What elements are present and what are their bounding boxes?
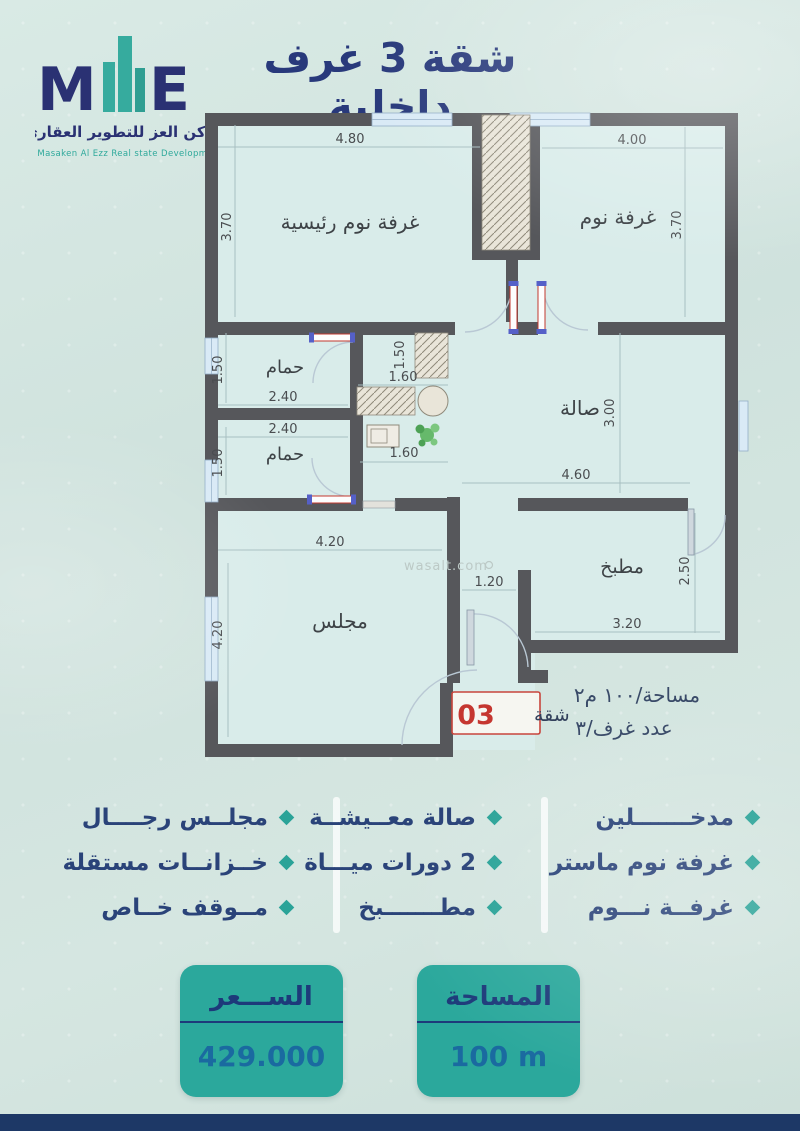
dim-majlis-width: 4.20 <box>316 535 345 550</box>
price-card-value: 429.000 <box>180 1040 343 1073</box>
feature-label: غرفة نوم ماستر <box>550 850 734 876</box>
dim-bath2-width: 2.40 <box>269 422 298 437</box>
diamond-bullet-icon <box>745 855 761 871</box>
diamond-bullet-icon <box>279 810 295 826</box>
floor-plan: 4.80 3.70 4.00 3.70 2.40 1.50 2.40 1.50 … <box>190 105 755 770</box>
features-column-entrances: مدخـــــــلين غرفة نوم ماستر غرفــة نـــ… <box>518 795 758 930</box>
majlis-open-door-leaf <box>363 501 395 508</box>
dim-bedroom-width: 4.00 <box>618 133 647 148</box>
feature-label: مدخـــــــلين <box>595 805 734 831</box>
dim-hall-width: 4.60 <box>562 468 591 483</box>
dim-bedroom-height: 3.70 <box>670 211 685 240</box>
feature-item: مطـــــــبخ <box>300 885 500 930</box>
washer-icon <box>367 425 399 447</box>
room-label-bedroom: غرفة نوم <box>580 205 656 229</box>
logo-monogram-e: E <box>149 55 190 125</box>
diamond-bullet-icon <box>487 900 503 916</box>
logo-monogram-m: M <box>37 55 97 125</box>
diamond-bullet-icon <box>745 900 761 916</box>
dim-utility-closet: 1.50 <box>393 341 408 370</box>
features-section: مدخـــــــلين غرفة نوم ماستر غرفــة نـــ… <box>0 795 800 945</box>
price-card-divider <box>180 1021 343 1023</box>
area-card-value: 100 m <box>417 1040 580 1073</box>
features-column-extras: مجلــس رجــــال خــزانــات مستقلة مــوقف… <box>42 795 292 930</box>
feature-item: خــزانــات مستقلة <box>42 840 292 885</box>
diamond-bullet-icon <box>487 810 503 826</box>
room-label-bath1: حمام <box>266 357 304 378</box>
dim-master-height: 3.70 <box>220 213 235 242</box>
room-label-bath2: حمام <box>266 444 304 465</box>
unit-badge: 03 شقة <box>452 692 570 734</box>
price-card: الســـعر 429.000 <box>180 965 343 1097</box>
room-label-kitchen: مطبخ <box>600 556 644 578</box>
feature-label: 2 دورات ميـــاة <box>304 850 476 876</box>
feature-item: مــوقف خــاص <box>42 885 292 930</box>
price-card-title: الســـعر <box>180 982 343 1012</box>
flyer-page: M E مساكن العز للتطوير العقاري Masaken A… <box>0 0 800 1131</box>
unit-number: 03 <box>457 700 495 731</box>
room-label-majlis: مجلس <box>312 609 368 633</box>
area-card: المساحة 100 m <box>417 965 580 1097</box>
feature-label: مــوقف خــاص <box>101 895 268 921</box>
unit-label: شقة <box>534 704 570 726</box>
logo-towers-icon <box>103 36 145 112</box>
diamond-bullet-icon <box>279 855 295 871</box>
dim-bath1-width: 2.40 <box>269 390 298 405</box>
dim-utility-top: 1.60 <box>389 370 418 385</box>
diamond-bullet-icon <box>279 900 295 916</box>
feature-item: صالة معــيشــة <box>300 795 500 840</box>
kitchen-door-leaf <box>688 509 694 555</box>
area-card-divider <box>417 1021 580 1023</box>
meta-area-line: مساحة/١٠٠ م٢ <box>574 683 700 707</box>
feature-item: مجلــس رجــــال <box>42 795 292 840</box>
feature-item: مدخـــــــلين <box>518 795 758 840</box>
dim-utility-bottom: 1.60 <box>390 446 419 461</box>
feature-item: غرفــة نـــوم <box>518 885 758 930</box>
room-label-hall: صالة <box>560 396 600 420</box>
dim-master-width: 4.80 <box>336 132 365 147</box>
feature-item: 2 دورات ميـــاة <box>300 840 500 885</box>
feature-label: مجلــس رجــــال <box>82 805 268 831</box>
feature-label: خــزانــات مستقلة <box>62 850 268 876</box>
diamond-bullet-icon <box>487 855 503 871</box>
dim-bath1-height: 1.50 <box>211 356 226 385</box>
diamond-bullet-icon <box>745 810 761 826</box>
feature-item: غرفة نوم ماستر <box>518 840 758 885</box>
features-column-living: صالة معــيشــة 2 دورات ميـــاة مطـــــــ… <box>300 795 500 930</box>
bottom-accent-bar <box>0 1114 800 1131</box>
dim-entry-width: 1.20 <box>475 575 504 590</box>
dim-bath2-height: 1.50 <box>211 449 226 478</box>
dim-hall-height: 3.00 <box>603 399 618 428</box>
room-label-master: غرفة نوم رئيسية <box>281 210 420 234</box>
meta-rooms-line: عدد غرف/٣ <box>575 716 672 740</box>
feature-label: غرفــة نـــوم <box>588 895 734 921</box>
dim-kitchen-height: 2.50 <box>678 557 693 586</box>
feature-label: مطـــــــبخ <box>358 895 476 921</box>
watermark-text: wasalt.com <box>404 559 488 574</box>
dim-kitchen-width: 3.20 <box>613 617 642 632</box>
area-card-title: المساحة <box>417 982 580 1012</box>
watermark: wasalt.com <box>404 559 493 574</box>
dim-majlis-height: 4.20 <box>211 621 226 650</box>
feature-label: صالة معــيشــة <box>309 805 476 831</box>
entry-door-leaf <box>467 610 474 665</box>
plan-meta: مساحة/١٠٠ م٢ عدد غرف/٣ <box>574 683 700 740</box>
